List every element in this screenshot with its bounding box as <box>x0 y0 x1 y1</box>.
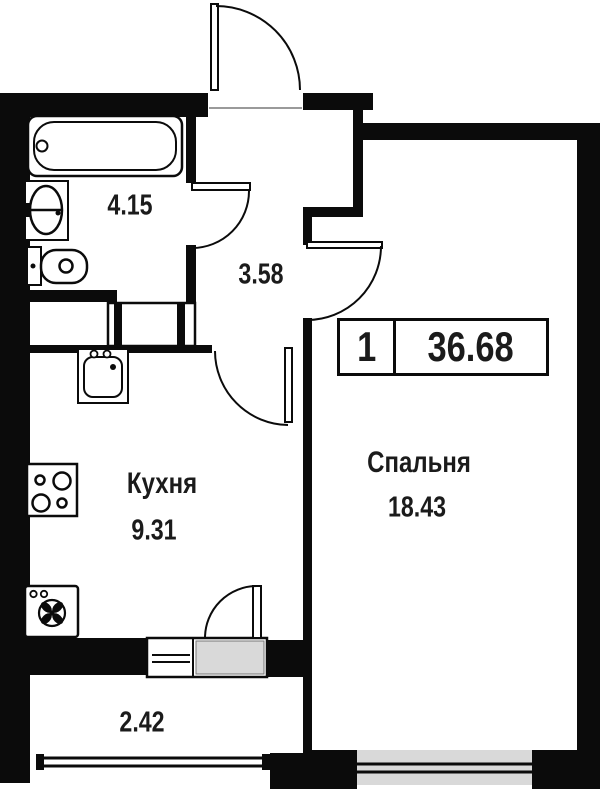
toilet <box>27 247 87 285</box>
washing-machine <box>25 586 78 637</box>
bedroom-window <box>349 750 540 785</box>
entrance-door <box>209 4 302 108</box>
kitchen-door <box>215 348 292 425</box>
bathroom-door <box>192 183 250 248</box>
plan-symbols <box>0 0 600 789</box>
balcony-area-label: 2.42 <box>119 709 164 738</box>
bathroom-area-label: 4.15 <box>107 192 152 221</box>
bathtub <box>28 116 182 176</box>
apartment-badge: 1 36.68 <box>337 318 549 376</box>
stove <box>27 464 77 516</box>
kitchen-area-label: 9.31 <box>131 517 176 546</box>
bedroom-door <box>307 242 382 320</box>
kitchen-name-label: Кухня <box>127 469 197 499</box>
duct-shaft <box>108 303 195 346</box>
badge-rooms-count: 1 <box>340 321 396 373</box>
hallway-area-label: 3.58 <box>238 261 283 290</box>
bedroom-name-label: Спальня <box>367 448 471 478</box>
balcony-door <box>147 586 267 677</box>
balcony-window <box>36 754 270 770</box>
kitchen-sink <box>78 349 128 403</box>
bathroom-sink <box>22 181 68 240</box>
floor-plan: 4.15 3.58 Кухня 9.31 Спальня 18.43 2.42 … <box>0 0 600 789</box>
bedroom-area-label: 18.43 <box>388 494 446 523</box>
badge-total-area: 36.68 <box>396 321 546 373</box>
